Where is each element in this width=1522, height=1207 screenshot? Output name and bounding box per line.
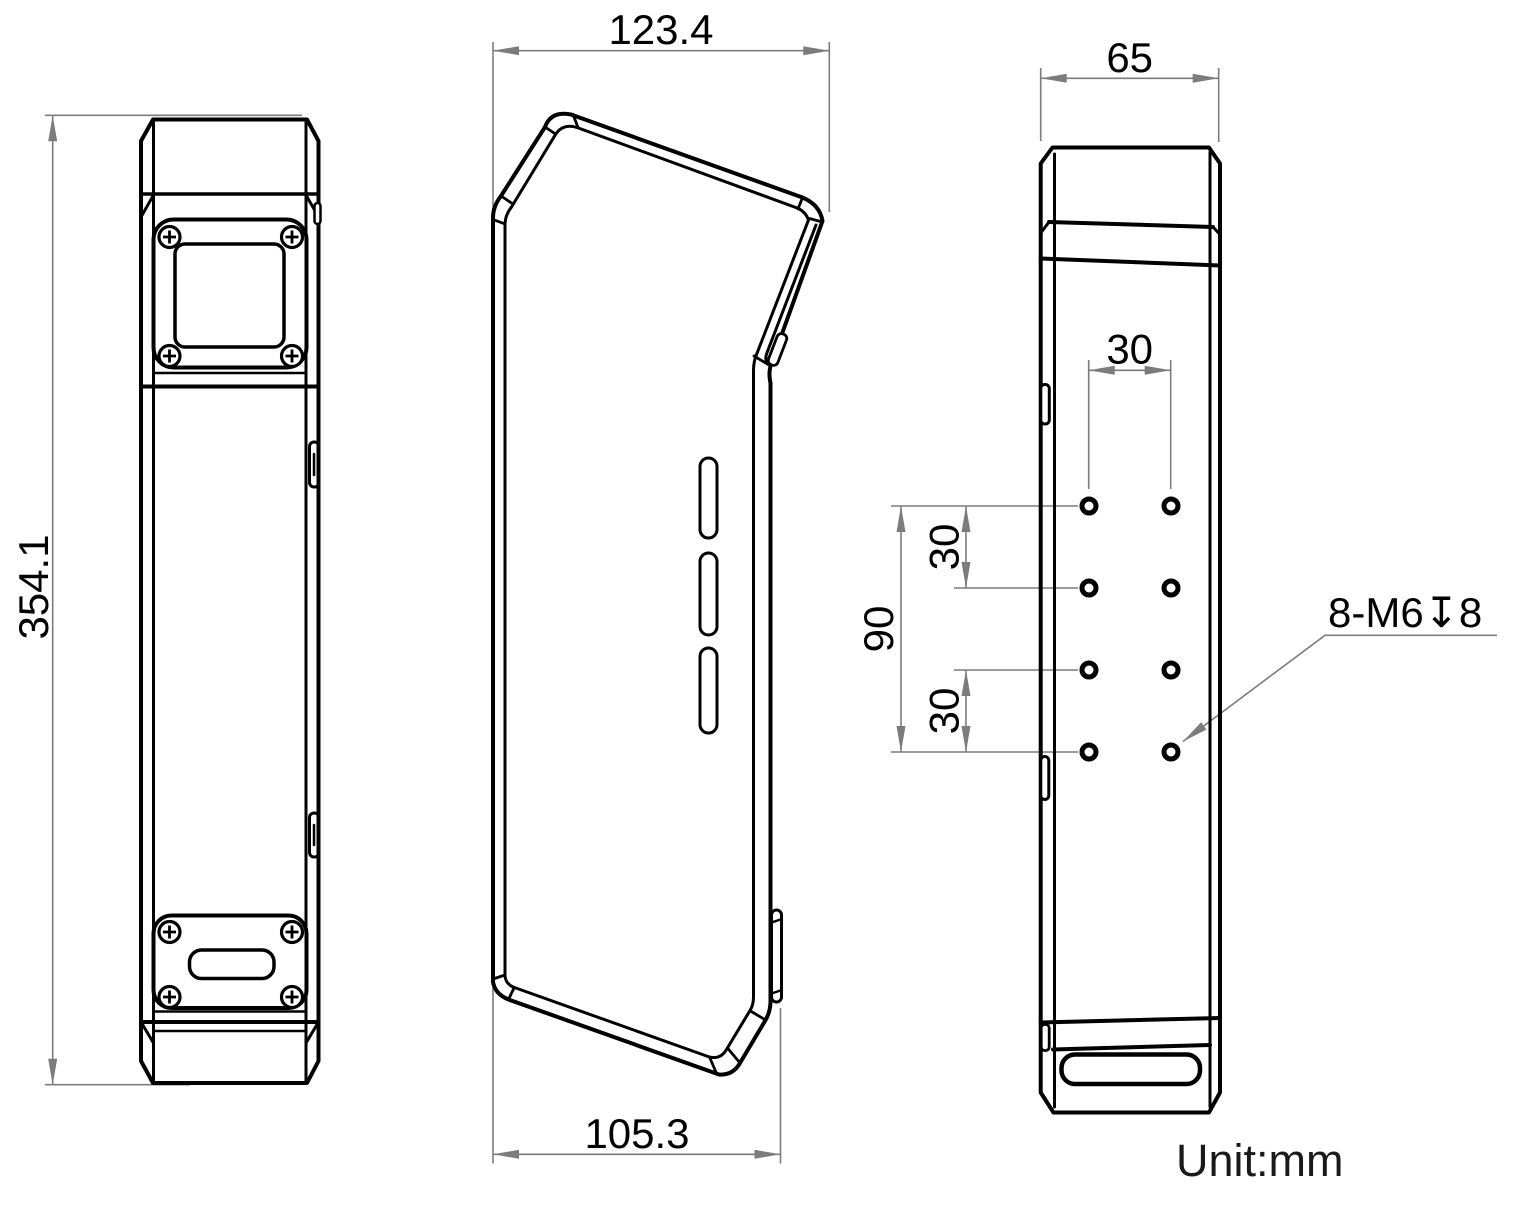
back-outline xyxy=(1041,148,1220,1113)
dimension-bottom-width: 105.3 xyxy=(493,988,781,1164)
dimension-back-width: 65 xyxy=(1041,34,1219,142)
front-side-latch-upper xyxy=(310,442,320,487)
side-bottom-tab xyxy=(772,910,782,1002)
bottom-plate-slot xyxy=(190,950,275,979)
back-view xyxy=(1041,148,1220,1113)
mounting-hole xyxy=(1082,581,1096,595)
screw-icon xyxy=(282,922,303,943)
thread-callout-label: 8-M6↧8 xyxy=(1328,589,1482,636)
mounting-hole xyxy=(1082,499,1096,513)
mounting-hole xyxy=(1164,581,1178,595)
back-bottom-slot xyxy=(1062,1055,1201,1085)
screw-icon xyxy=(282,227,303,248)
arrowhead xyxy=(755,1150,781,1159)
mounting-hole xyxy=(1164,499,1178,513)
vent-slot xyxy=(700,648,717,733)
back-left-latch-lower xyxy=(1041,757,1049,800)
dimension-top-width: 123.4 xyxy=(493,6,829,216)
screw-icon xyxy=(159,227,180,248)
mounting-hole xyxy=(1164,663,1178,677)
back-top-seam xyxy=(1049,222,1213,227)
front-side-latch-lower xyxy=(310,813,320,857)
front-top-seam-chamfers xyxy=(141,195,319,217)
arrowhead xyxy=(803,46,829,55)
arrowhead xyxy=(48,1059,57,1085)
screw-icon xyxy=(159,987,180,1008)
front-bottom-plate xyxy=(154,916,307,1009)
screw-icon xyxy=(159,922,180,943)
screw-icon xyxy=(282,987,303,1008)
overall-height-label: 354.1 xyxy=(10,534,57,639)
dimension-hole-column-spacing: 30 xyxy=(1089,326,1171,490)
thread-callout: 8-M6↧8 xyxy=(1180,589,1497,745)
top-width-label: 123.4 xyxy=(608,6,713,53)
back-width-label: 65 xyxy=(1106,34,1153,81)
hole-column-spacing-label: 30 xyxy=(1106,326,1153,373)
mounting-hole xyxy=(1082,663,1096,677)
screw-icon xyxy=(159,346,180,367)
dimension-overall-height: 354.1 xyxy=(10,115,302,1084)
arrowhead xyxy=(1041,74,1067,83)
arrowhead xyxy=(1193,74,1219,83)
technical-drawing-page: 354.1 123.4 105.3 65 30 xyxy=(0,0,1522,1207)
hole-row-span-label: 90 xyxy=(855,606,902,653)
back-side-edges xyxy=(1055,152,1211,1107)
hole-row-spacing-lower-label: 30 xyxy=(921,688,968,735)
unit-note: Unit:mm xyxy=(1176,1135,1344,1186)
back-upper-seam xyxy=(1041,259,1220,266)
vent-slot xyxy=(700,553,717,635)
front-bottom-seam-chamfers xyxy=(141,1022,319,1043)
mounting-hole xyxy=(1082,745,1096,759)
arrowhead xyxy=(48,115,57,141)
front-sensor-plate xyxy=(154,220,307,368)
side-view xyxy=(493,114,823,1075)
hole-row-spacing-upper-label: 30 xyxy=(921,524,968,571)
dimension-hole-row-span: 90 xyxy=(855,506,906,752)
side-inner-outline xyxy=(505,126,809,1057)
back-lower-seam xyxy=(1053,1045,1210,1050)
front-view xyxy=(141,120,321,1084)
dimension-hole-row-spacing-upper: 30 xyxy=(921,506,971,588)
screw-icon xyxy=(282,346,303,367)
back-bottom-seam xyxy=(1041,1018,1220,1023)
arrowhead xyxy=(1180,722,1206,745)
front-right-notch xyxy=(315,203,321,224)
mounting-holes xyxy=(1082,499,1178,759)
back-left-latch-upper xyxy=(1041,385,1050,425)
side-upper-clip xyxy=(767,332,788,366)
back-bottom-left-tab xyxy=(1041,1025,1049,1051)
arrowhead xyxy=(897,726,906,752)
hole-row-extension-lines xyxy=(891,506,1078,752)
bottom-width-label: 105.3 xyxy=(584,1110,689,1157)
dimension-hole-row-spacing-lower: 30 xyxy=(921,670,971,752)
arrowhead xyxy=(897,506,906,532)
arrowhead xyxy=(493,1150,519,1159)
side-vent-slots xyxy=(700,458,717,733)
vent-slot xyxy=(700,458,717,538)
technical-drawing: 354.1 123.4 105.3 65 30 xyxy=(0,0,1522,1207)
arrowhead xyxy=(493,46,519,55)
mounting-hole xyxy=(1164,745,1178,759)
sensor-window xyxy=(175,244,284,347)
